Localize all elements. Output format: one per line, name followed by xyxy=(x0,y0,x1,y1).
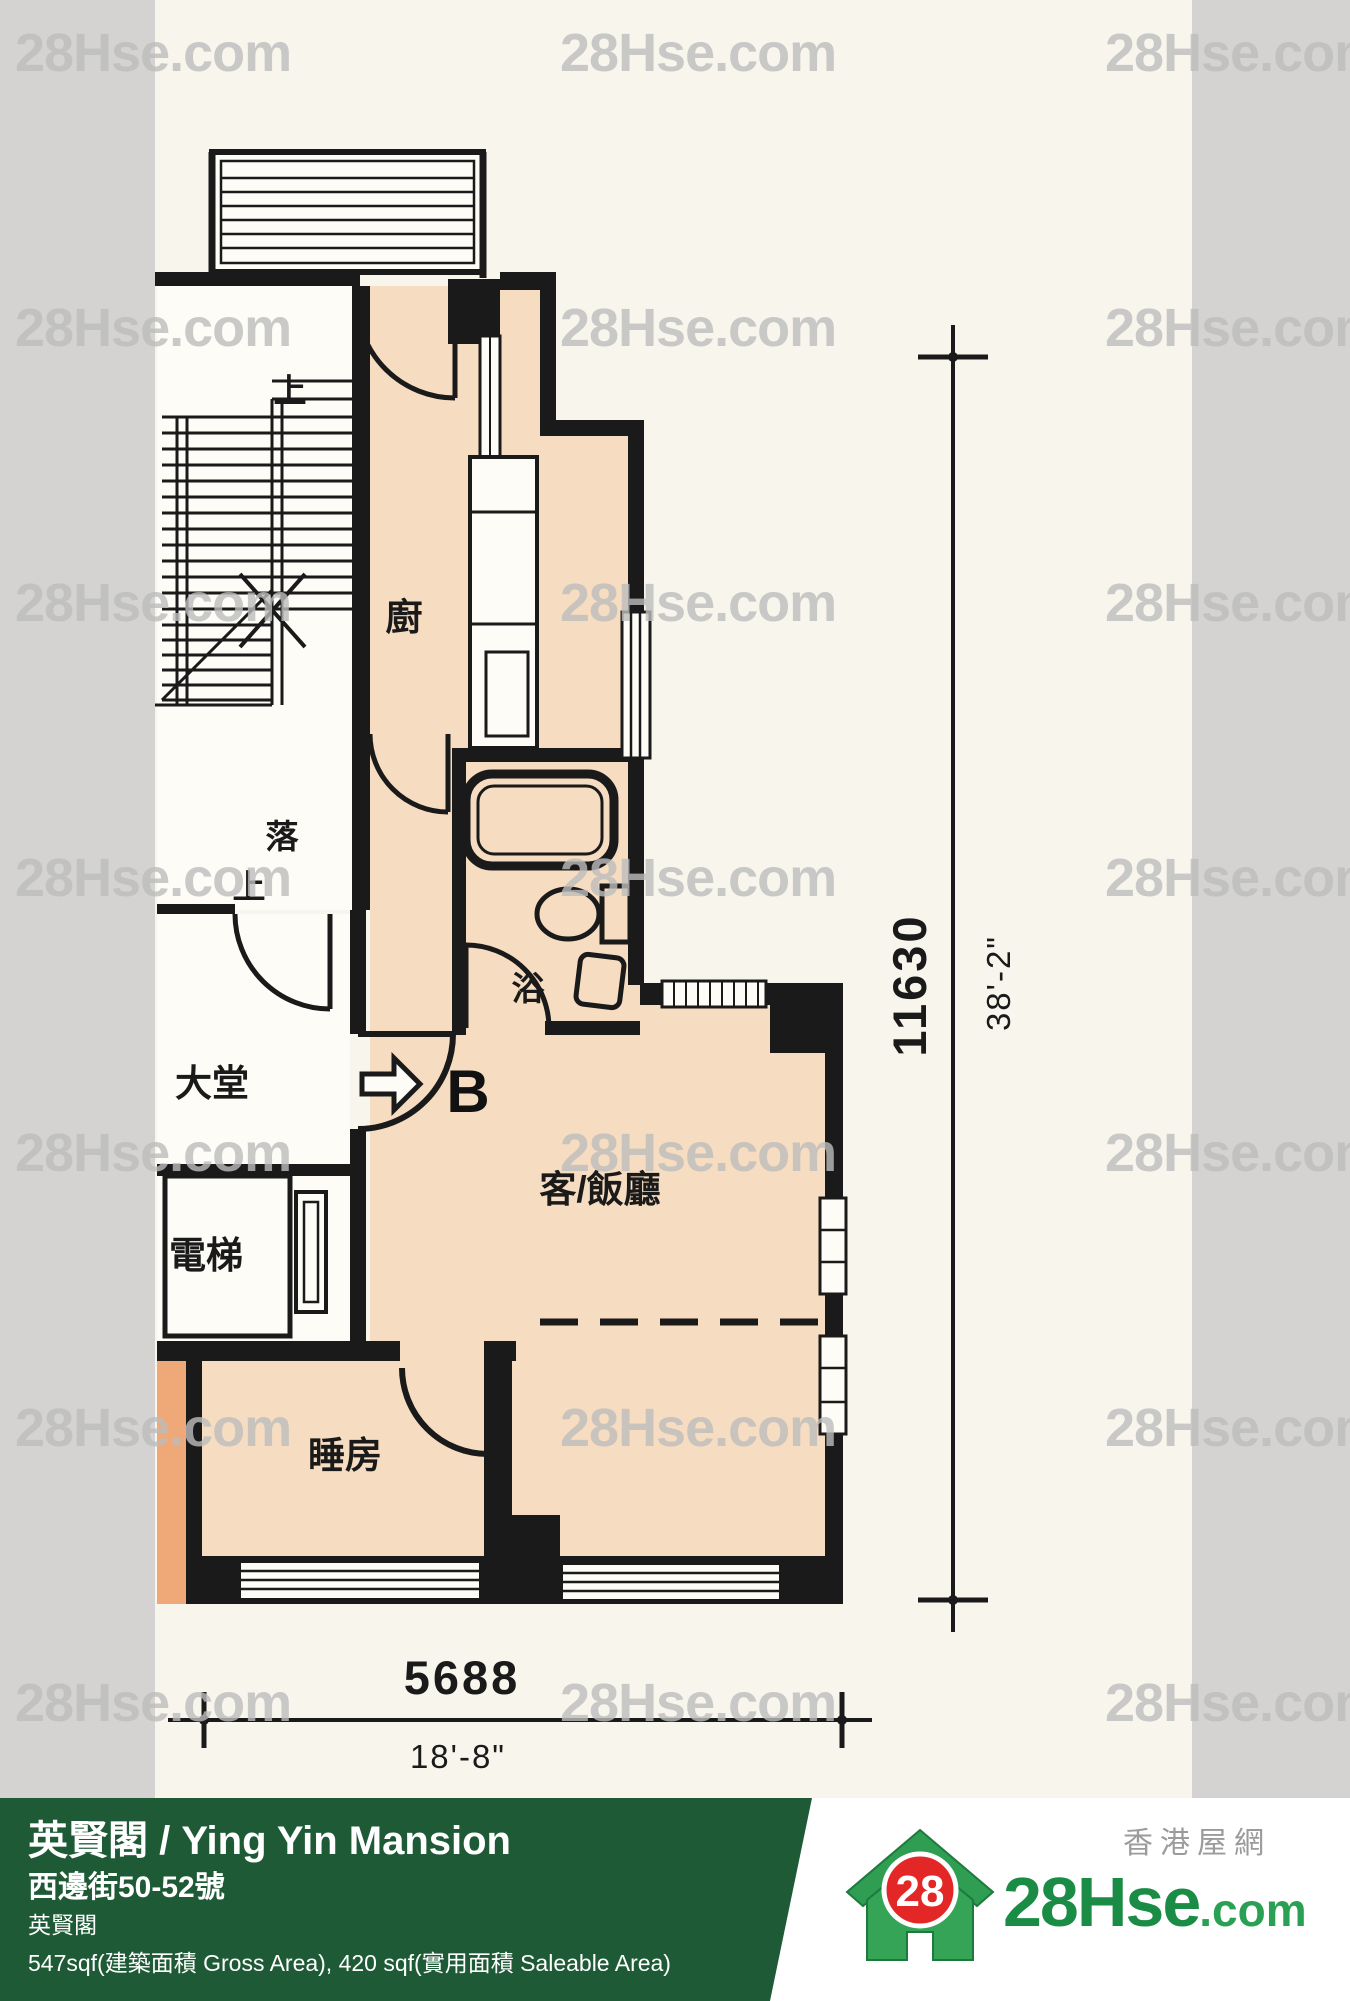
house-logo-icon: 28 xyxy=(845,1826,995,1966)
brand-text: 28Hse.com xyxy=(1003,1862,1307,1942)
brand-tagline: 香港屋網 xyxy=(1123,1818,1271,1862)
room-label-kitchen: 廚 xyxy=(386,596,423,638)
footer-bar: 英賢閣 / Ying Yin Mansion 西邊街50-52號 英賢閣 547… xyxy=(0,1798,1350,2001)
room-label-stairs-down: 落 xyxy=(266,818,300,855)
brand-28hse: 28Hse xyxy=(1003,1863,1199,1941)
page: 上 落 上 廚 浴 大堂 電梯 客/飯廳 睡房 B 11630 38'-2" xyxy=(0,0,1350,2001)
footer-green-panel: 英賢閣 / Ying Yin Mansion 西邊街50-52號 英賢閣 547… xyxy=(0,1798,812,2001)
badge-28: 28 xyxy=(896,1867,945,1916)
room-label-stairs-up-top: 上 xyxy=(274,372,307,409)
room-label-lobby: 大堂 xyxy=(175,1063,249,1104)
estate-building-name: 英賢閣 xyxy=(28,1906,97,1940)
kitchen-counter xyxy=(470,457,537,748)
room-label-stairs-up-lower: 上 xyxy=(233,868,266,905)
estate-address: 西邊街50-52號 xyxy=(28,1862,225,1906)
floor-plan: 上 落 上 廚 浴 大堂 電梯 客/飯廳 睡房 B 11630 38'-2" xyxy=(0,0,1350,2001)
logo-28hse[interactable]: 28 28Hse.com 香港屋網 xyxy=(845,1812,1325,1992)
dimension-height-ft: 38'-2" xyxy=(980,935,1017,1031)
brand-dot-com: .com xyxy=(1199,1884,1306,1936)
dimension-width-mm: 5688 xyxy=(404,1651,521,1704)
unit-label-b: B xyxy=(446,1058,489,1125)
lobby-floor xyxy=(157,914,350,1164)
room-label-bedroom: 睡房 xyxy=(308,1435,382,1476)
estate-title: 英賢閣 / Ying Yin Mansion xyxy=(28,1808,511,1866)
room-label-elevator: 電梯 xyxy=(169,1235,243,1276)
room-label-bath: 浴 xyxy=(512,970,546,1007)
dimension-height-mm: 11630 xyxy=(883,913,936,1056)
room-label-living-dining: 客/飯廳 xyxy=(539,1168,660,1210)
dimension-width-ft: 18'-8" xyxy=(410,1738,506,1775)
estate-area-info: 547sqf(建築面積 Gross Area), 420 sqf(實用面積 Sa… xyxy=(28,1944,671,1978)
louver-window xyxy=(212,152,483,278)
